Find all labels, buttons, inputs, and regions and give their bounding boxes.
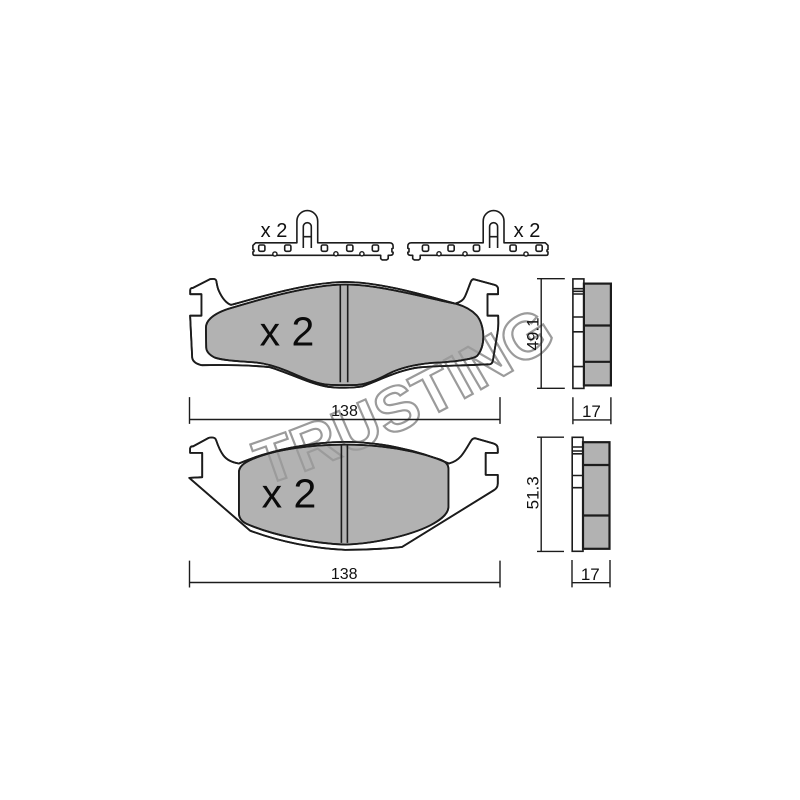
svg-text:x 2: x 2 bbox=[514, 220, 541, 242]
svg-text:x 2: x 2 bbox=[262, 471, 317, 517]
svg-text:17: 17 bbox=[581, 565, 600, 584]
svg-text:17: 17 bbox=[582, 402, 601, 421]
svg-text:138: 138 bbox=[331, 403, 358, 420]
svg-text:138: 138 bbox=[331, 566, 358, 583]
svg-text:x 2: x 2 bbox=[261, 220, 288, 242]
svg-text:x 2: x 2 bbox=[260, 309, 315, 355]
svg-text:51.3: 51.3 bbox=[524, 476, 543, 509]
svg-text:49.1: 49.1 bbox=[524, 317, 543, 350]
